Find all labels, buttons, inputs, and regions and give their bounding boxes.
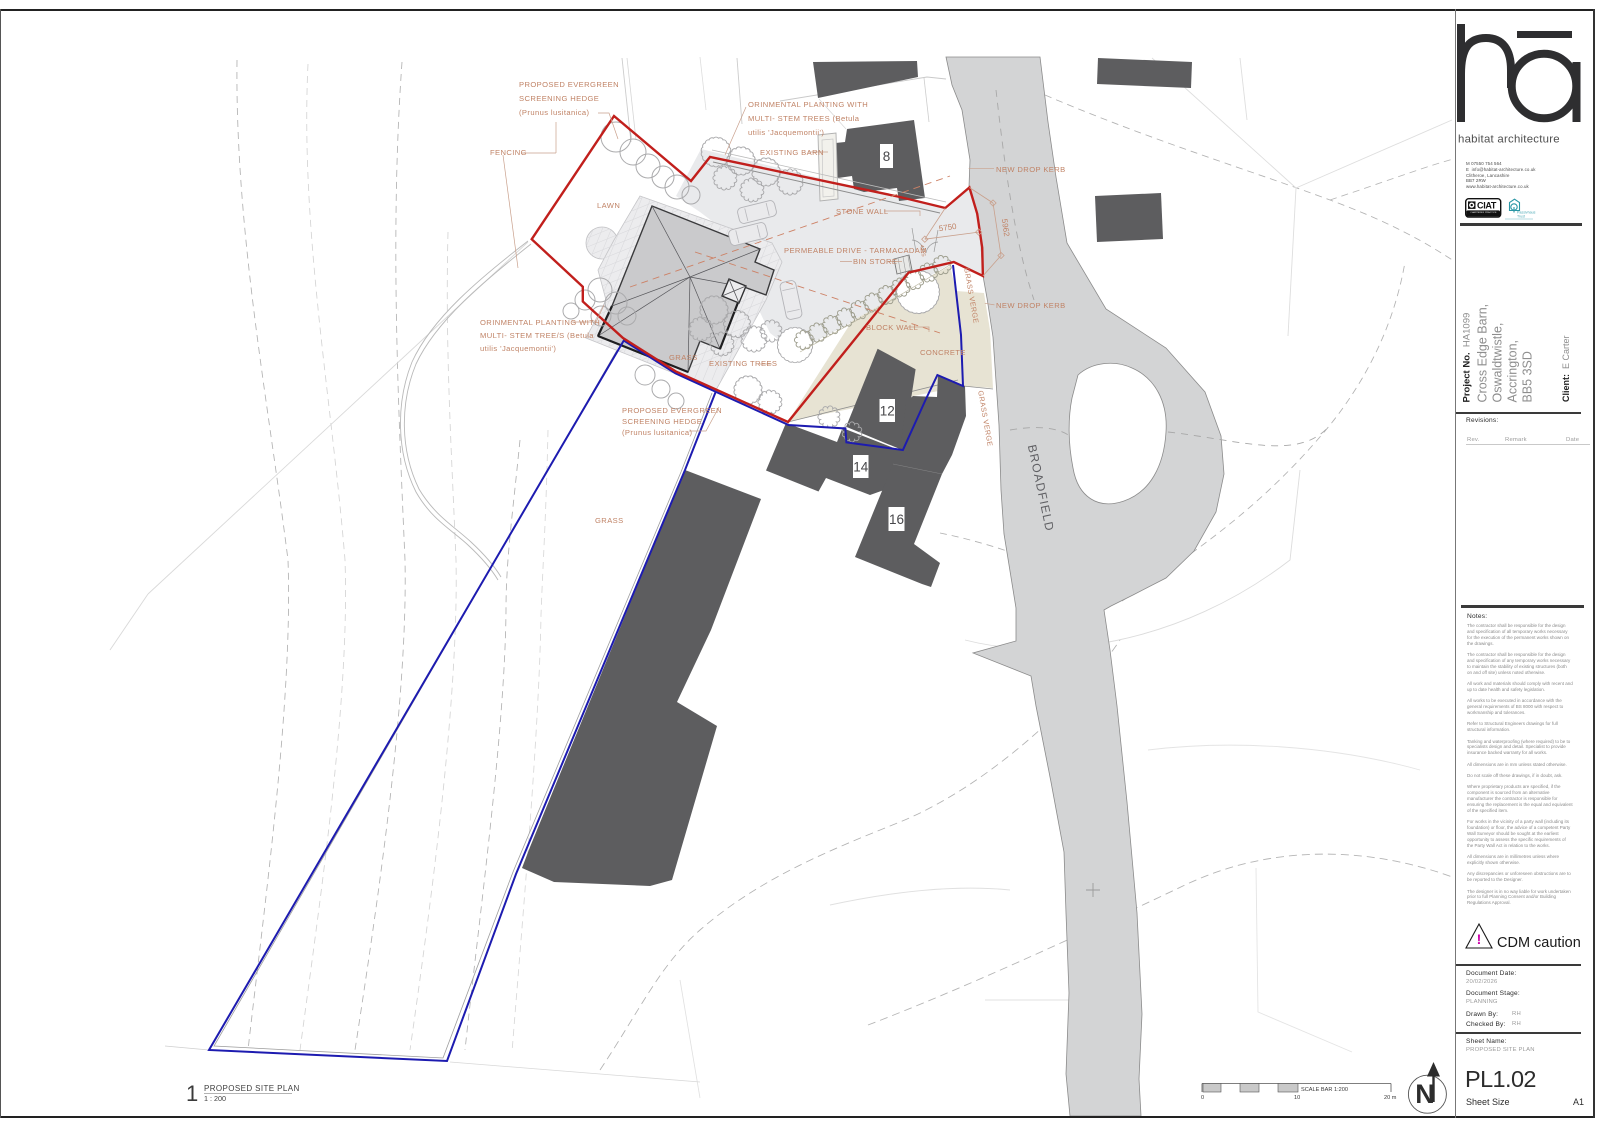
svg-text:SCREENING HEDGE: SCREENING HEDGE (622, 417, 702, 426)
svg-text:16: 16 (889, 512, 904, 527)
svg-text:8: 8 (883, 149, 891, 164)
svg-text:PROPOSED EVERGREEN: PROPOSED EVERGREEN (519, 80, 619, 89)
svg-text:STONE WALL: STONE WALL (836, 207, 889, 216)
svg-text:ORINMENTAL PLANTING WITH: ORINMENTAL PLANTING WITH (748, 100, 868, 109)
svg-text:utilis 'Jacquemontii'): utilis 'Jacquemontii') (480, 344, 556, 353)
svg-text:!: ! (1477, 931, 1482, 947)
svg-text:EXISTING TREES: EXISTING TREES (709, 359, 777, 368)
svg-text:CDM caution: CDM caution (1497, 935, 1581, 951)
svg-text:CIAT: CIAT (1477, 201, 1497, 211)
svg-text:GRASS: GRASS (669, 353, 698, 362)
svg-text:NEW DROP KERB: NEW DROP KERB (996, 301, 1066, 310)
svg-text:PROPOSED EVERGREEN: PROPOSED EVERGREEN (622, 406, 722, 415)
svg-text:BLOCK WALL: BLOCK WALL (866, 323, 918, 332)
svg-text:habitat architecture: habitat architecture (1458, 134, 1560, 146)
svg-text:PERMEABLE DRIVE - TARMACADAM: PERMEABLE DRIVE - TARMACADAM (784, 246, 927, 255)
svg-text:GRASS: GRASS (595, 516, 624, 525)
svg-text:(Prunus lusitanica): (Prunus lusitanica) (519, 108, 590, 117)
svg-text:12: 12 (880, 403, 895, 418)
svg-text:NEW DROP KERB: NEW DROP KERB (996, 165, 1066, 174)
svg-text:0: 0 (1201, 1095, 1204, 1101)
svg-text:20 m: 20 m (1384, 1095, 1397, 1101)
svg-text:MULTI- STEM TREES (Betula: MULTI- STEM TREES (Betula (748, 114, 860, 123)
svg-text:N: N (1415, 1079, 1435, 1109)
svg-text:1: 1 (186, 1081, 198, 1106)
svg-text:CONCRETE: CONCRETE (920, 348, 966, 357)
svg-text:14: 14 (853, 459, 869, 474)
svg-text:SCREENING HEDGE: SCREENING HEDGE (519, 94, 599, 103)
svg-text:SCALE BAR 1:200: SCALE BAR 1:200 (1301, 1087, 1348, 1093)
svg-text:1 : 200: 1 : 200 (204, 1094, 226, 1103)
svg-text:GRASS VERGE: GRASS VERGE (976, 390, 995, 447)
svg-text:FENCING: FENCING (490, 148, 527, 157)
svg-text:MULTI- STEM TREE/S (Betula: MULTI- STEM TREE/S (Betula (480, 331, 594, 340)
svg-text:ORINMENTAL PLANTING WITH: ORINMENTAL PLANTING WITH (480, 318, 600, 327)
svg-text:Trust: Trust (1517, 215, 1525, 219)
svg-text:10: 10 (1294, 1095, 1300, 1101)
svg-text:utilis 'Jacquemontii'): utilis 'Jacquemontii') (748, 128, 824, 137)
svg-text:PROPOSED SITE PLAN: PROPOSED SITE PLAN (204, 1084, 300, 1093)
svg-text:(Prunus lusitanica): (Prunus lusitanica) (622, 428, 693, 437)
svg-text:EXISTING BARN: EXISTING BARN (760, 148, 824, 157)
svg-text:LAWN: LAWN (597, 201, 620, 210)
svg-text:BIN STORE: BIN STORE (853, 257, 897, 266)
svg-text:CHARTERED PRACTICE: CHARTERED PRACTICE (1470, 211, 1497, 214)
